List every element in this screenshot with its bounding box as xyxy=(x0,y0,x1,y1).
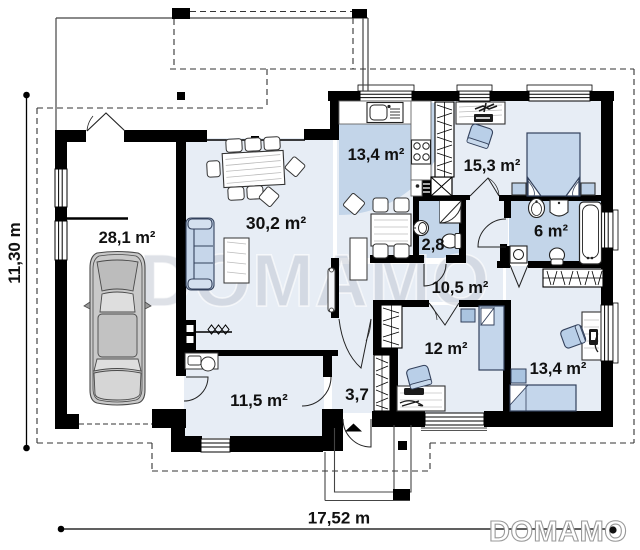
svg-text:15,3 m²: 15,3 m² xyxy=(464,157,521,175)
svg-text:6 m²: 6 m² xyxy=(534,223,568,241)
svg-text:17,52 m: 17,52 m xyxy=(308,509,370,528)
svg-text:13,4 m²: 13,4 m² xyxy=(530,360,587,378)
svg-text:12 m²: 12 m² xyxy=(424,340,468,358)
svg-text:13,4 m²: 13,4 m² xyxy=(348,146,405,164)
svg-text:DOMAMO: DOMAMO xyxy=(489,516,627,548)
svg-text:3,7: 3,7 xyxy=(345,385,369,404)
svg-text:11,5 m²: 11,5 m² xyxy=(230,391,288,410)
svg-text:2,8: 2,8 xyxy=(422,236,445,254)
svg-text:10,5 m²: 10,5 m² xyxy=(432,279,489,297)
svg-text:30,2 m²: 30,2 m² xyxy=(246,213,306,233)
svg-text:28,1 m²: 28,1 m² xyxy=(99,229,156,247)
svg-text:11,30 m: 11,30 m xyxy=(5,222,24,283)
